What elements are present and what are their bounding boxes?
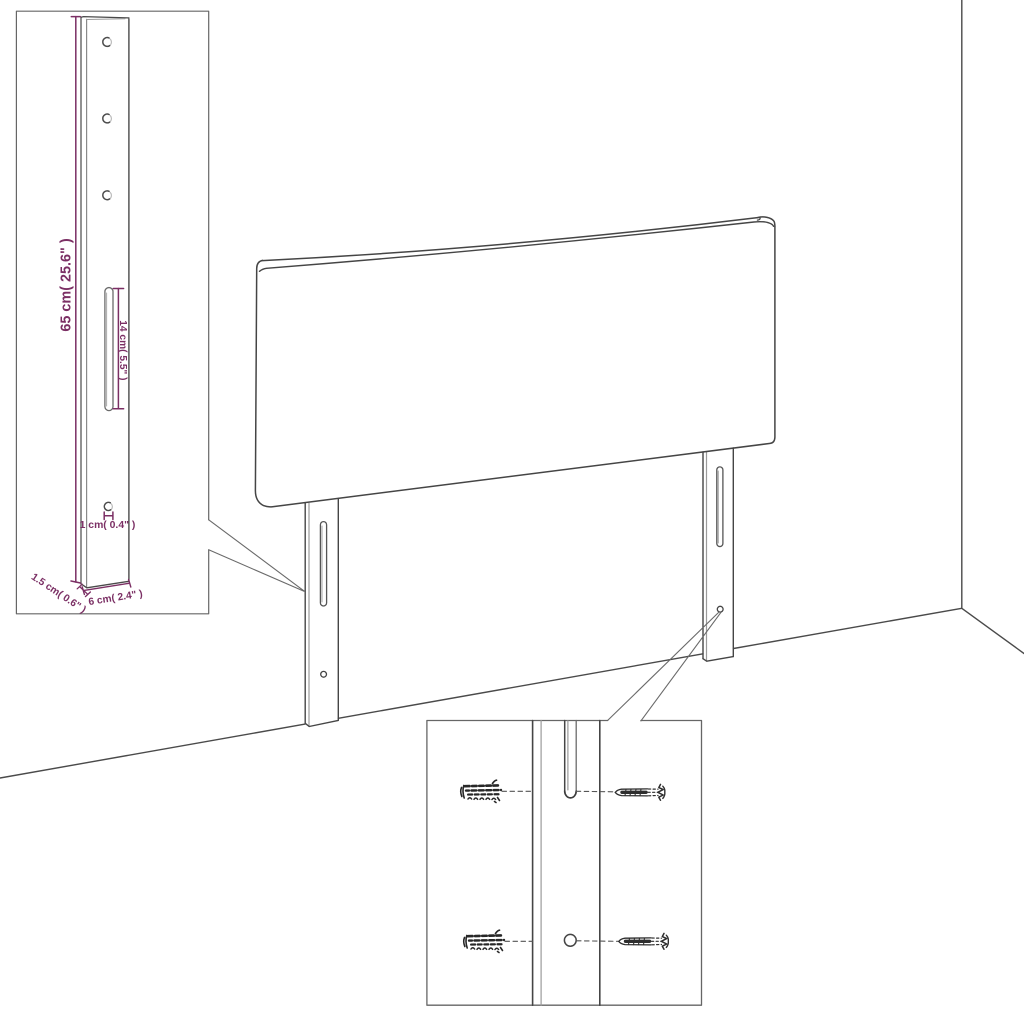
svg-text:14 cm( 5.5" ): 14 cm( 5.5" ): [117, 320, 128, 380]
svg-text:65 cm( 25.6" ): 65 cm( 25.6" ): [58, 238, 74, 331]
svg-text:1 cm( 0.4" ): 1 cm( 0.4" ): [80, 520, 136, 531]
